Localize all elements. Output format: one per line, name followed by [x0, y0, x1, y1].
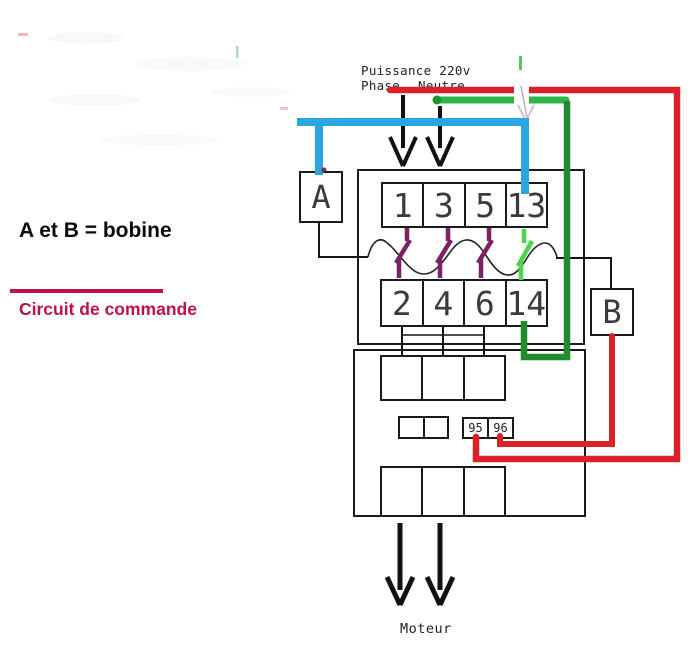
coil-a-label: A: [311, 181, 330, 213]
wiring-diagram: Puissance 220v Phase Neutre A et B = bob…: [0, 0, 690, 647]
aux-terminal-95: 95: [464, 419, 487, 437]
coil-note-label: A et B = bobine: [19, 219, 172, 243]
phase-label: Phase: [361, 79, 400, 93]
terminal-cell-13: 13: [505, 184, 546, 226]
terminal-cell-2: 2: [382, 281, 422, 325]
annotation-underline: [10, 289, 163, 293]
control-circuit-label: Circuit de commande: [19, 299, 197, 320]
aux-terminal-96: 96: [487, 419, 512, 437]
neutral-arrow-head: [427, 137, 453, 166]
relay-aux-block: 95 96: [462, 417, 514, 439]
coil-b-box: B: [590, 288, 634, 336]
contactor-top-terminal-row: 1 3 5 13: [381, 182, 548, 228]
contactor-bottom-terminal-row: 2 4 6 14: [380, 279, 548, 327]
relay-cell: [382, 357, 421, 399]
relay-cell: [400, 418, 423, 437]
supply-arrows: [390, 95, 453, 166]
coil-b-label: B: [602, 296, 621, 328]
neutral-junction-dot: [433, 96, 442, 105]
relay-cell: [421, 468, 462, 515]
relay-cell: [463, 468, 504, 515]
neutral-label: Neutre: [418, 79, 465, 93]
terminal-cell-3: 3: [422, 184, 463, 226]
motor-label: Moteur: [400, 621, 452, 637]
relay-mid-block: [398, 416, 449, 439]
terminal-cell-14: 14: [505, 281, 547, 325]
motor-arrows: [387, 523, 453, 605]
wiring-overlay: [0, 0, 690, 647]
terminal-cell-4: 4: [422, 281, 464, 325]
motor-arrow-head: [387, 577, 413, 605]
phase-arrow-head: [390, 137, 416, 166]
terminal-cell-5: 5: [464, 184, 505, 226]
motor-arrow-head: [427, 577, 453, 605]
artifact-smudges: [18, 32, 290, 146]
relay-cell: [382, 468, 421, 515]
relay-upper-block: [380, 355, 506, 401]
coil-a-box: A: [299, 171, 343, 223]
erased-arrow-remnant: [514, 56, 534, 123]
relay-lower-block: [380, 466, 506, 517]
terminal-cell-6: 6: [463, 281, 505, 325]
relay-cell: [423, 418, 448, 437]
power-label: Puissance 220v: [361, 64, 471, 78]
relay-cell: [421, 357, 462, 399]
terminal-cell-1: 1: [383, 184, 422, 226]
relay-cell: [463, 357, 504, 399]
